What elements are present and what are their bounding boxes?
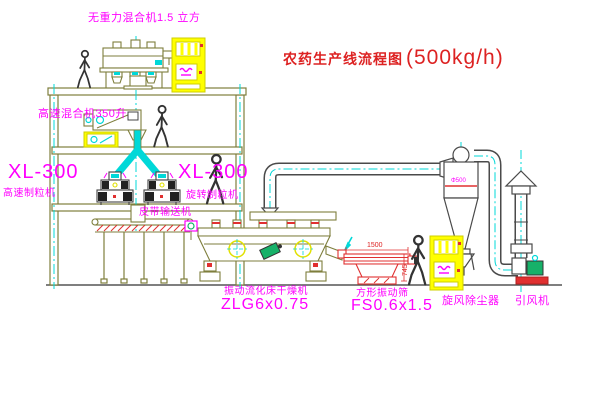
belt-conveyor-drawing <box>92 219 193 283</box>
fluid-bed-dryer-drawing <box>185 220 330 281</box>
control-cabinet-right <box>430 236 463 290</box>
flow-diagram-canvas: 农药生产线流程图 (500kg/h) 无重力混合机1.5 立方 高速混合机350… <box>0 0 600 403</box>
worker-figure-2 <box>154 106 168 147</box>
induced-draft-fan-drawing <box>512 256 548 285</box>
sieve-height-dimension: 745 <box>402 264 409 276</box>
high-speed-mixer-label: 高速混合机350升 <box>38 109 127 120</box>
exhaust-duct <box>262 169 440 217</box>
gravity-mixer-drawing <box>100 40 175 89</box>
title-text: 农药生产线流程图 <box>283 49 403 69</box>
sieve-model-label: FS0.6x1.5 <box>351 298 433 314</box>
xl300-mid-model-label: XL-300 <box>178 162 249 182</box>
dryer-model-label: ZLG6x0.75 <box>221 297 309 313</box>
granulator-right-drawing <box>144 172 180 205</box>
cyclone-diameter-note: Φ500 <box>451 178 466 184</box>
xl300-left-model-label: XL-300 <box>8 162 79 182</box>
fan-label: 引风机 <box>515 296 550 307</box>
cyclone-label: 旋风除尘器 <box>442 296 500 307</box>
belt-conveyor-label: 皮带输送机 <box>139 208 192 218</box>
sieve-width-dimension: 1500 <box>367 242 383 249</box>
xl300-left-name-label: 高速制粒机 <box>3 189 56 199</box>
xl300-mid-name-label: 旋转制粒机 <box>186 191 239 201</box>
control-cabinet-top <box>172 38 205 92</box>
dryer-hood <box>250 212 336 220</box>
page-title: 农药生产线流程图 (500kg/h) <box>283 46 504 70</box>
title-capacity: (500kg/h) <box>406 46 504 70</box>
granulator-left-drawing <box>97 172 133 205</box>
gravity-mixer-label: 无重力混合机1.5 立方 <box>88 13 200 24</box>
worker-figure-1 <box>78 51 90 88</box>
